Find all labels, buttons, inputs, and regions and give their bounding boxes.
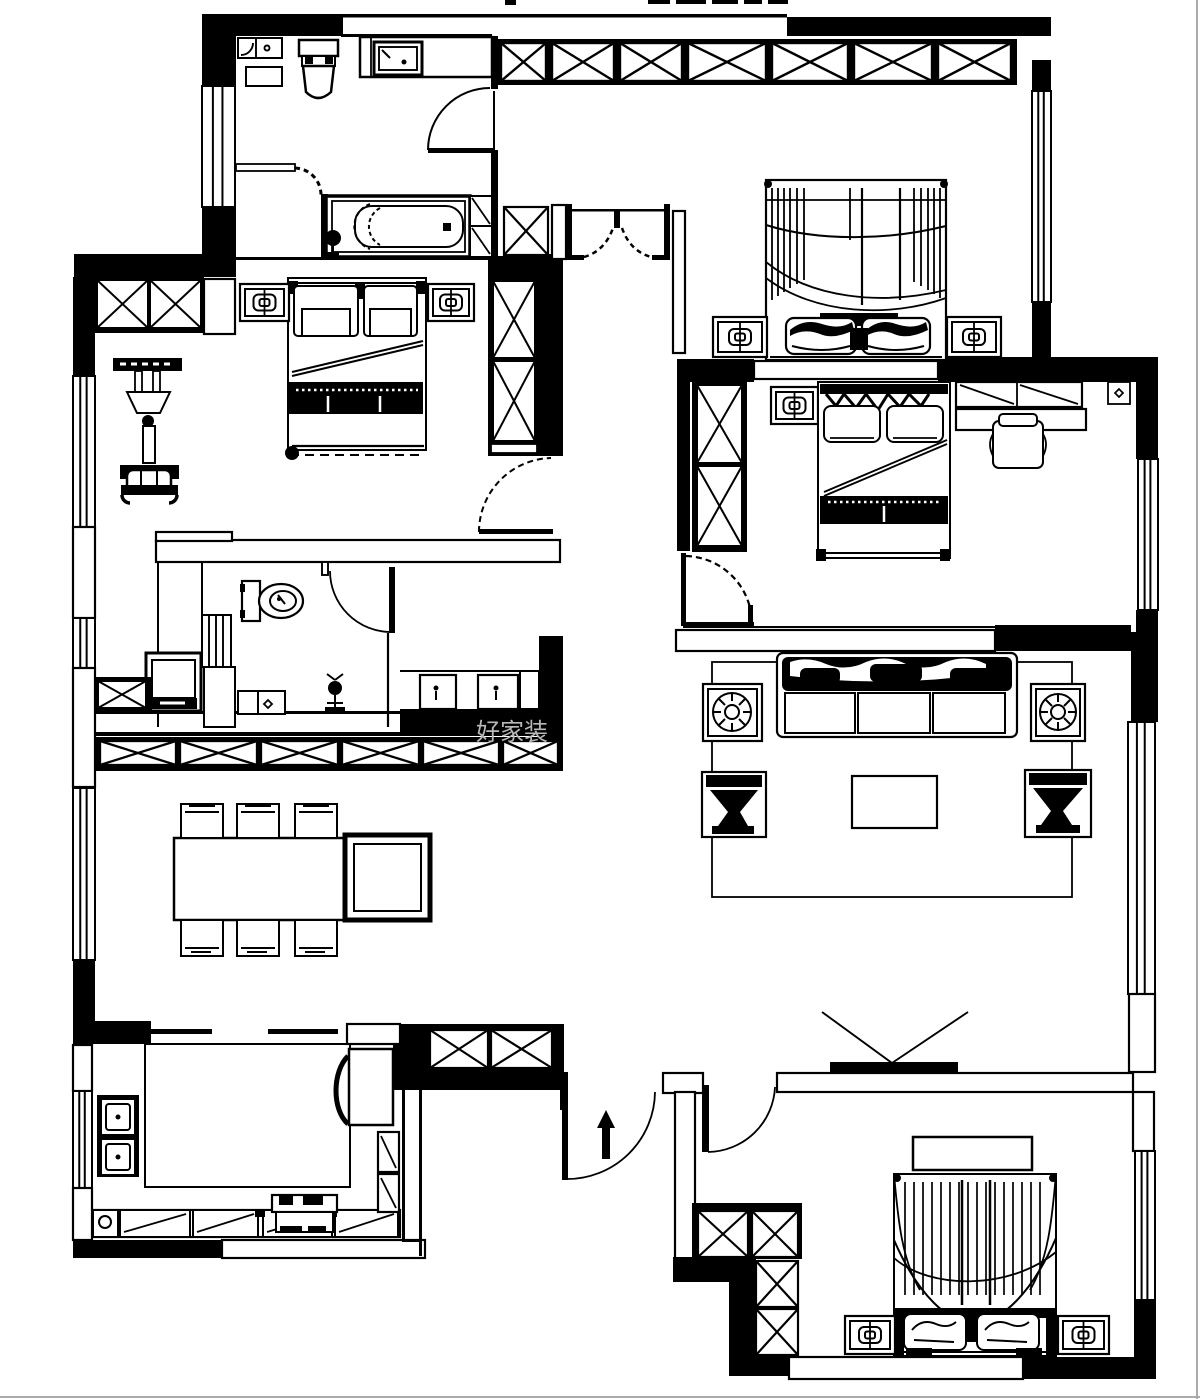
svg-text:好家装: 好家装	[476, 719, 548, 746]
